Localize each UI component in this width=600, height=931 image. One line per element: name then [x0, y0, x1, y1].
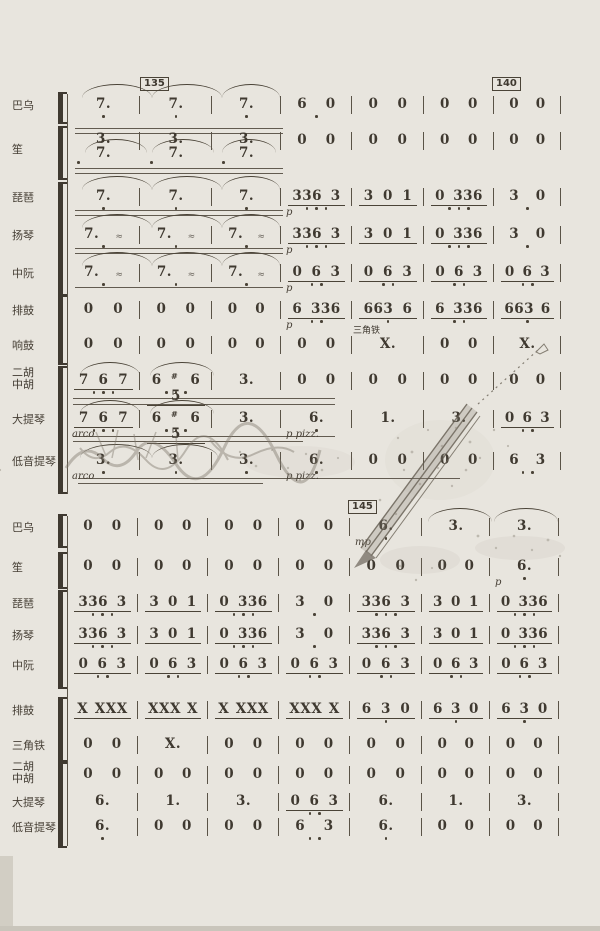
note-beam-group: 301 [145, 626, 201, 644]
note: 3 [509, 188, 519, 204]
measure-cell: 301 [422, 626, 490, 660]
note-beam-group: 60 [288, 96, 345, 112]
sharp-sign: # [171, 406, 180, 422]
note: 0 [398, 372, 408, 388]
score-row: 低音提琴3.arco3.3.6.p pizz.000063 [0, 452, 600, 488]
note-beam-group: 00 [215, 558, 272, 574]
note-beam-group: 00 [74, 336, 133, 352]
note: 0 [182, 558, 192, 574]
note-beam-group: 063 [74, 656, 131, 674]
note: 0 [295, 766, 305, 782]
note: 1 [469, 626, 479, 642]
measure-cell: 00 [422, 558, 490, 592]
measure-group: 000000006.mp3.3. [67, 518, 559, 552]
note: 0 [536, 226, 546, 242]
octave-dots [494, 283, 561, 286]
measure-cell: 00 [212, 336, 281, 370]
note: 0 [465, 766, 475, 782]
note: 0 [326, 96, 336, 112]
dynamic-marking: p pizz. [286, 429, 319, 440]
note-beam-group: 00 [286, 736, 343, 752]
measure-cell: 301 [138, 626, 208, 660]
note: 3. [236, 793, 251, 809]
note: 6 [433, 701, 443, 717]
stacked-notes: 3.7. [239, 132, 254, 160]
note-beam-group: XXXX [145, 701, 201, 719]
octave-dots [494, 429, 561, 432]
note: 6. [378, 818, 393, 834]
measure-cell: 6#56 [140, 372, 212, 406]
measure-cell: 0336 [424, 226, 494, 260]
measure-group: 00X.0000000000 [67, 736, 559, 770]
note: 6 [190, 372, 200, 404]
note-beam-group: 7.≈ [219, 226, 274, 242]
note: 3 [400, 594, 410, 610]
note: 3 [540, 264, 550, 280]
note: 336 [362, 626, 392, 642]
measure-cell: 00 [424, 336, 494, 370]
note-beam-group: 7. [74, 188, 133, 204]
instrument-annotation: 三角铁 [353, 323, 380, 336]
note: 3 [402, 264, 412, 280]
measure-group: 7.7.7.60000000 [67, 96, 561, 130]
note: 0 [396, 736, 406, 752]
measure-cell: 7. [140, 188, 212, 222]
note: 0 [293, 264, 303, 280]
note: 0 [369, 452, 379, 468]
dynamic-marking: mp [355, 537, 371, 548]
note: 3. [168, 452, 183, 468]
instrument-label: 中阮 [12, 265, 60, 281]
measure-cell: 30 [494, 188, 561, 222]
note: 0 [83, 736, 93, 752]
note: 0 [465, 558, 475, 574]
measure-cell: 7. [67, 188, 140, 222]
note: 6 [362, 701, 372, 717]
note-beam-group: 0336 [497, 626, 552, 644]
measure-cell: 3.7. [67, 132, 140, 166]
note: 0 [112, 766, 122, 782]
note-beam-group: 30 [286, 594, 343, 610]
measure-cell: 630 [422, 701, 490, 735]
octave-dots [67, 207, 140, 210]
octave-dots [279, 675, 350, 678]
measure-cell: 063 [494, 264, 561, 298]
note: 1 [469, 594, 479, 610]
note: 3 [433, 594, 443, 610]
note-beam-group: 7.≈ [74, 264, 133, 280]
measure-cell: 00 [424, 132, 494, 166]
note: 6. [309, 452, 324, 468]
octave-dots [422, 720, 490, 723]
octave-dots [140, 283, 212, 286]
measure-cell: 00 [208, 518, 279, 552]
note: 6 [523, 264, 533, 280]
note-beam-group: 0336 [497, 594, 552, 612]
note: 7. [239, 96, 254, 112]
note-beam-group: 6. [288, 452, 345, 468]
note-beam-group: 767 [74, 372, 133, 390]
note: 0 [468, 452, 478, 468]
measure-group: 3.7.3.7.3.7.00000000 [67, 132, 561, 166]
note-beam-group: 00 [429, 818, 483, 834]
note-beam-group: 00 [431, 132, 487, 148]
measure-cell: 00 [494, 372, 561, 406]
note-beam-group: 063 [215, 656, 272, 674]
note: 3. [517, 518, 532, 534]
octave-dots [208, 645, 279, 648]
note: 6 [451, 656, 461, 672]
note: 3 [520, 701, 530, 717]
measure-cell: 3. [140, 452, 212, 486]
octave-dots [494, 245, 561, 248]
page-edge-shadow [0, 926, 600, 931]
note-beam-group: 63 [501, 452, 554, 468]
note: 0 [536, 372, 546, 388]
measure-cell: 00 [352, 132, 424, 166]
note: 1. [165, 793, 180, 809]
note-beam-group: 3. [497, 518, 552, 534]
measure-cell: 00 [281, 372, 352, 406]
note-beam-group: 00 [359, 96, 417, 112]
note: 0 [509, 96, 519, 112]
note: 0 [367, 736, 377, 752]
note: 6 [383, 264, 393, 280]
note-beam-group: 7. [147, 188, 205, 204]
note: 0 [228, 336, 238, 352]
measure-cell: 063 [279, 656, 350, 690]
note: 3 [295, 594, 305, 610]
note-beam-group: 1. [145, 793, 201, 809]
instrument-label: 二胡中胡 [12, 761, 60, 785]
instrument-label: 笙 [12, 141, 60, 157]
measure-cell: 630 [350, 701, 422, 735]
note-beam-group: 7. [219, 188, 274, 204]
note: 0 [362, 656, 372, 672]
note: 3 [538, 656, 548, 672]
octave-dots [490, 613, 559, 616]
instrument-label: 琵琶 [12, 595, 60, 611]
note: 7. [84, 226, 99, 242]
note-beam-group: 3. [147, 452, 205, 468]
measure-cell: 6#56 [140, 410, 212, 444]
note: 3. [517, 793, 532, 809]
note-beam-group: X. [145, 736, 201, 752]
measure-cell: 00 [208, 818, 279, 852]
note: 336 [238, 594, 268, 610]
note-beam-group: 7. [147, 96, 205, 112]
note: 3. [451, 410, 466, 426]
octave-dots [424, 283, 494, 286]
note-beam-group: 3. [429, 518, 483, 534]
note-beam-group: 00 [357, 766, 415, 782]
note: 0 [182, 766, 192, 782]
note: 336 [518, 626, 548, 642]
note: 0 [468, 372, 478, 388]
note: 3 [329, 793, 339, 809]
note-beam-group: 00 [501, 96, 554, 112]
note: 3 [400, 656, 410, 672]
note-beam-group: 6#56 [147, 372, 205, 406]
note: 6 [310, 793, 320, 809]
instrument-label: 响鼓 [12, 337, 60, 353]
octave-dots [350, 675, 422, 678]
note-beam-group: 3363 [288, 226, 345, 244]
note: 6 [152, 372, 162, 404]
measure-cell: 00 [352, 372, 424, 406]
note: 3. [239, 452, 254, 468]
note: 0 [468, 96, 478, 112]
note: 0 [438, 766, 448, 782]
measure-cell: 7.≈ [67, 226, 140, 260]
note: XXX [148, 701, 181, 717]
note: 0 [297, 336, 307, 352]
note-beam-group: X. [501, 336, 554, 352]
note-beam-group: 063 [145, 656, 201, 674]
note: 7. [96, 96, 111, 112]
note: 3 [364, 226, 374, 242]
note-beam-group: 0336 [431, 188, 487, 206]
note-beam-group: 00 [497, 736, 552, 752]
measure-cell: 00 [490, 818, 559, 852]
note: 0 [154, 558, 164, 574]
tremolo-mark: ≈ [115, 270, 123, 280]
note: 0 [440, 132, 450, 148]
dynamic-marking: p [495, 577, 501, 588]
octave-dots [67, 161, 150, 164]
measure-cell: 6. [67, 818, 138, 852]
measure-cell: 3363 [350, 594, 422, 628]
note: 0 [324, 594, 334, 610]
note: 0 [533, 766, 543, 782]
note: 3 [258, 656, 268, 672]
note-beam-group: 00 [286, 558, 343, 574]
note: 0 [538, 701, 548, 717]
note: 7 [118, 372, 128, 388]
measure-cell: 3. [212, 410, 281, 444]
note: 0 [435, 226, 445, 242]
note: 0 [383, 226, 393, 242]
note-beam-group: 3. [219, 452, 274, 468]
note: 0 [396, 558, 406, 574]
note: 3. [239, 132, 254, 146]
stacked-notes: 3.7. [168, 132, 183, 160]
note-beam-group: 00 [147, 301, 205, 317]
note-beam-group: 00 [74, 518, 131, 534]
note-beam-group: 6636 [359, 301, 417, 319]
note-beam-group: 063 [497, 656, 552, 674]
note: 7. [157, 226, 172, 242]
note: 0 [112, 558, 122, 574]
note: 336 [453, 301, 483, 317]
measure-cell: 6.mp [350, 518, 422, 552]
note: 0 [465, 736, 475, 752]
note: 0 [509, 372, 519, 388]
note: 3 [509, 226, 519, 242]
note: 0 [295, 736, 305, 752]
note: 3. [448, 518, 463, 534]
note: X. [380, 336, 396, 352]
note: #5 [171, 372, 181, 404]
measure-cell: 3. [424, 410, 494, 444]
measure-cell: 00 [138, 558, 208, 592]
octave-dots [422, 675, 490, 678]
note: 0 [295, 518, 305, 534]
measure-group: 3.arco3.3.6.p pizz.000063 [67, 452, 561, 486]
score-row: 琵琶336330103363033633010336 [0, 594, 600, 630]
instrument-label: 笙 [12, 559, 60, 575]
note: 0 [224, 766, 234, 782]
instrument-label: 二胡中胡 [12, 367, 60, 391]
note: 0 [84, 336, 94, 352]
measure-cell: 63 [279, 818, 350, 852]
measure-cell: 7.≈ [140, 264, 212, 298]
note: 0 [369, 132, 379, 148]
note: 0 [253, 518, 263, 534]
note: 0 [253, 818, 263, 834]
score-row: 中阮7.≈7.≈7.≈063p063063063 [0, 264, 600, 300]
tremolo-mark: ≈ [188, 232, 196, 242]
note: 0 [224, 558, 234, 574]
note: 7. [96, 146, 111, 160]
note: 6 [99, 410, 109, 426]
octave-dots [140, 471, 212, 474]
score-row: 中阮063063063063063063063 [0, 656, 600, 692]
note-beam-group: 00 [219, 301, 274, 317]
note: XXX [95, 701, 128, 717]
note: 3. [239, 372, 254, 388]
measure-cell: 6.p pizz. [281, 452, 352, 486]
note: 1. [448, 793, 463, 809]
note-beam-group: XXXX [286, 701, 343, 719]
note: 0 [253, 766, 263, 782]
measure-cell: 063p [281, 264, 352, 298]
note: 6 [310, 656, 320, 672]
note: 0 [440, 372, 450, 388]
note-beam-group: 301 [359, 188, 417, 206]
instrument-label: 大提琴 [12, 794, 60, 810]
note: 0 [509, 132, 519, 148]
instrument-label: 大提琴 [12, 411, 60, 427]
note: 336 [292, 226, 322, 242]
note: 7. [239, 188, 254, 204]
note: 0 [383, 188, 393, 204]
rehearsal-marker-145: 145 [348, 500, 377, 514]
measure-cell: 00 [67, 336, 140, 370]
note: 3 [433, 626, 443, 642]
instrument-label: 排鼓 [12, 702, 60, 718]
dynamic-marking: arco [72, 429, 94, 440]
note: 0 [326, 336, 336, 352]
octave-dots [67, 283, 140, 286]
note: 0 [255, 336, 265, 352]
measure-cell: 7.≈ [67, 264, 140, 298]
note-beam-group: 0336 [431, 226, 487, 244]
tremolo-mark: ≈ [257, 270, 265, 280]
note-beam-group: 00 [145, 766, 201, 782]
octave-dots [352, 283, 424, 286]
note: 0 [157, 301, 167, 317]
octave-dots [212, 161, 291, 164]
measure-cell: 30 [494, 226, 561, 260]
note-beam-group: 00 [431, 336, 487, 352]
note: 0 [79, 656, 89, 672]
measure-group: 7.≈7.≈7.≈063p063063063 [67, 264, 561, 298]
note-beam-group: 1. [429, 793, 483, 809]
note: 336 [453, 226, 483, 242]
note: 0 [326, 372, 336, 388]
note: 0 [224, 518, 234, 534]
note: 6. [95, 793, 110, 809]
note: 336 [453, 188, 483, 204]
note: 1 [187, 626, 197, 642]
note-beam-group: 3. [497, 793, 552, 809]
note: 6. [95, 818, 110, 834]
note: 0 [533, 736, 543, 752]
measure-cell: 00 [67, 558, 138, 592]
measure-cell: 6.p pizz. [281, 410, 352, 444]
note: 0 [253, 558, 263, 574]
note: 3 [536, 452, 546, 468]
measure-cell: 00 [494, 132, 561, 166]
measure-cell: 00 [424, 452, 494, 486]
note: 3 [451, 701, 461, 717]
octave-dots [140, 245, 212, 248]
note-beam-group: 00 [359, 452, 417, 468]
note: 7. [96, 188, 111, 204]
measure-cell: 063 [490, 656, 559, 690]
measure-cell: 3363p [281, 226, 352, 260]
octave-dots [424, 245, 494, 248]
note-beam-group: 0336 [215, 594, 272, 612]
note: 6 [312, 264, 322, 280]
note-beam-group: 00 [286, 518, 343, 534]
octave-dots [140, 115, 212, 118]
measure-cell: 00 [140, 301, 212, 335]
note: 6 [402, 301, 412, 317]
measure-cell: 063 [67, 656, 138, 690]
note: 0 [297, 132, 307, 148]
score-page: 135 140 145 巴乌7.7. [0, 0, 600, 931]
octave-dots [212, 115, 281, 118]
note: 6 [520, 656, 530, 672]
note-beam-group: 301 [429, 594, 483, 612]
note: 3 [331, 264, 341, 280]
measure-cell: 063 [352, 264, 424, 298]
octave-dots [208, 675, 279, 678]
note: 0 [224, 818, 234, 834]
note: 7. [239, 146, 254, 160]
note: 6 [435, 301, 445, 317]
note: 0 [505, 264, 515, 280]
note-beam-group: 063 [286, 793, 343, 811]
measure-cell: 3363 [350, 626, 422, 660]
note-beam-group: 00 [288, 372, 345, 388]
note-beam-group: 6. [74, 793, 131, 809]
note: 0 [168, 626, 178, 642]
note: XXX [236, 701, 269, 717]
octave-dots [350, 837, 422, 840]
note-beam-group: 00 [74, 766, 131, 782]
octave-dots [212, 245, 281, 248]
measure-cell: 3. [490, 518, 559, 552]
note-beam-group: 063 [501, 264, 554, 282]
note-beam-group: 00 [219, 336, 274, 352]
note-beam-group: 00 [431, 452, 487, 468]
dynamic-marking: p [286, 207, 292, 218]
note-beam-group: 301 [429, 626, 483, 644]
note: 3. [239, 410, 254, 426]
